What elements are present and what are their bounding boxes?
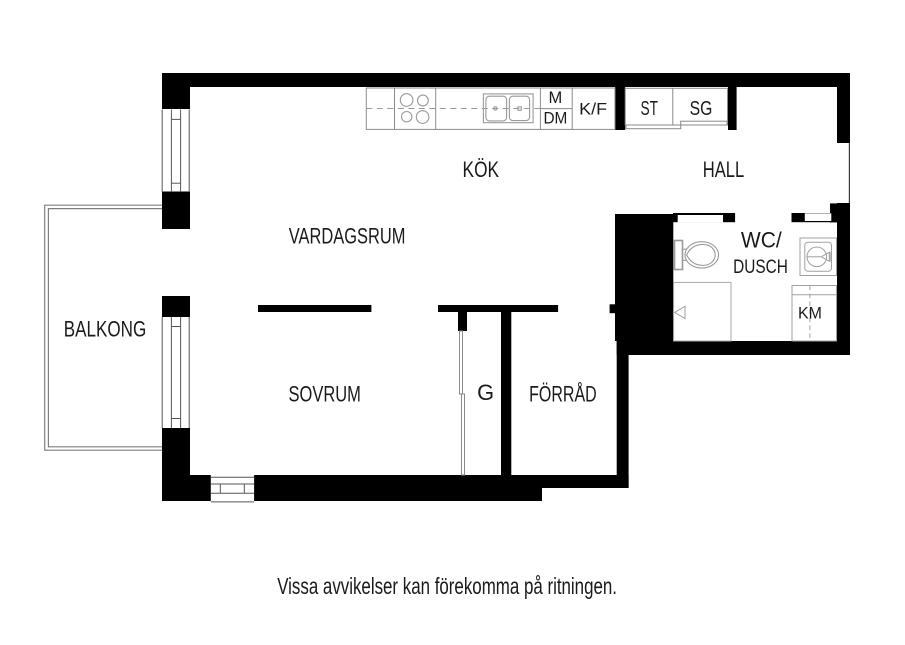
svg-text:DUSCH: DUSCH	[733, 256, 788, 278]
svg-text:DM: DM	[543, 109, 567, 128]
svg-text:G: G	[477, 380, 494, 405]
svg-text:SG: SG	[690, 97, 713, 120]
svg-text:WC/: WC/	[741, 228, 783, 253]
svg-text:K/F: K/F	[579, 100, 607, 118]
svg-text:BALKONG: BALKONG	[64, 317, 146, 342]
svg-text:M: M	[549, 89, 563, 107]
svg-text:Vissa avvikelser kan förekomma: Vissa avvikelser kan förekomma på ritnin…	[277, 573, 617, 599]
svg-text:HALL: HALL	[703, 157, 745, 182]
svg-text:FÖRRÅD: FÖRRÅD	[529, 381, 597, 406]
svg-text:KM: KM	[798, 305, 822, 323]
svg-text:ST: ST	[641, 97, 659, 120]
svg-text:SOVRUM: SOVRUM	[289, 381, 361, 406]
svg-text:VARDAGSRUM: VARDAGSRUM	[289, 223, 406, 248]
svg-text:KÖK: KÖK	[463, 157, 500, 182]
